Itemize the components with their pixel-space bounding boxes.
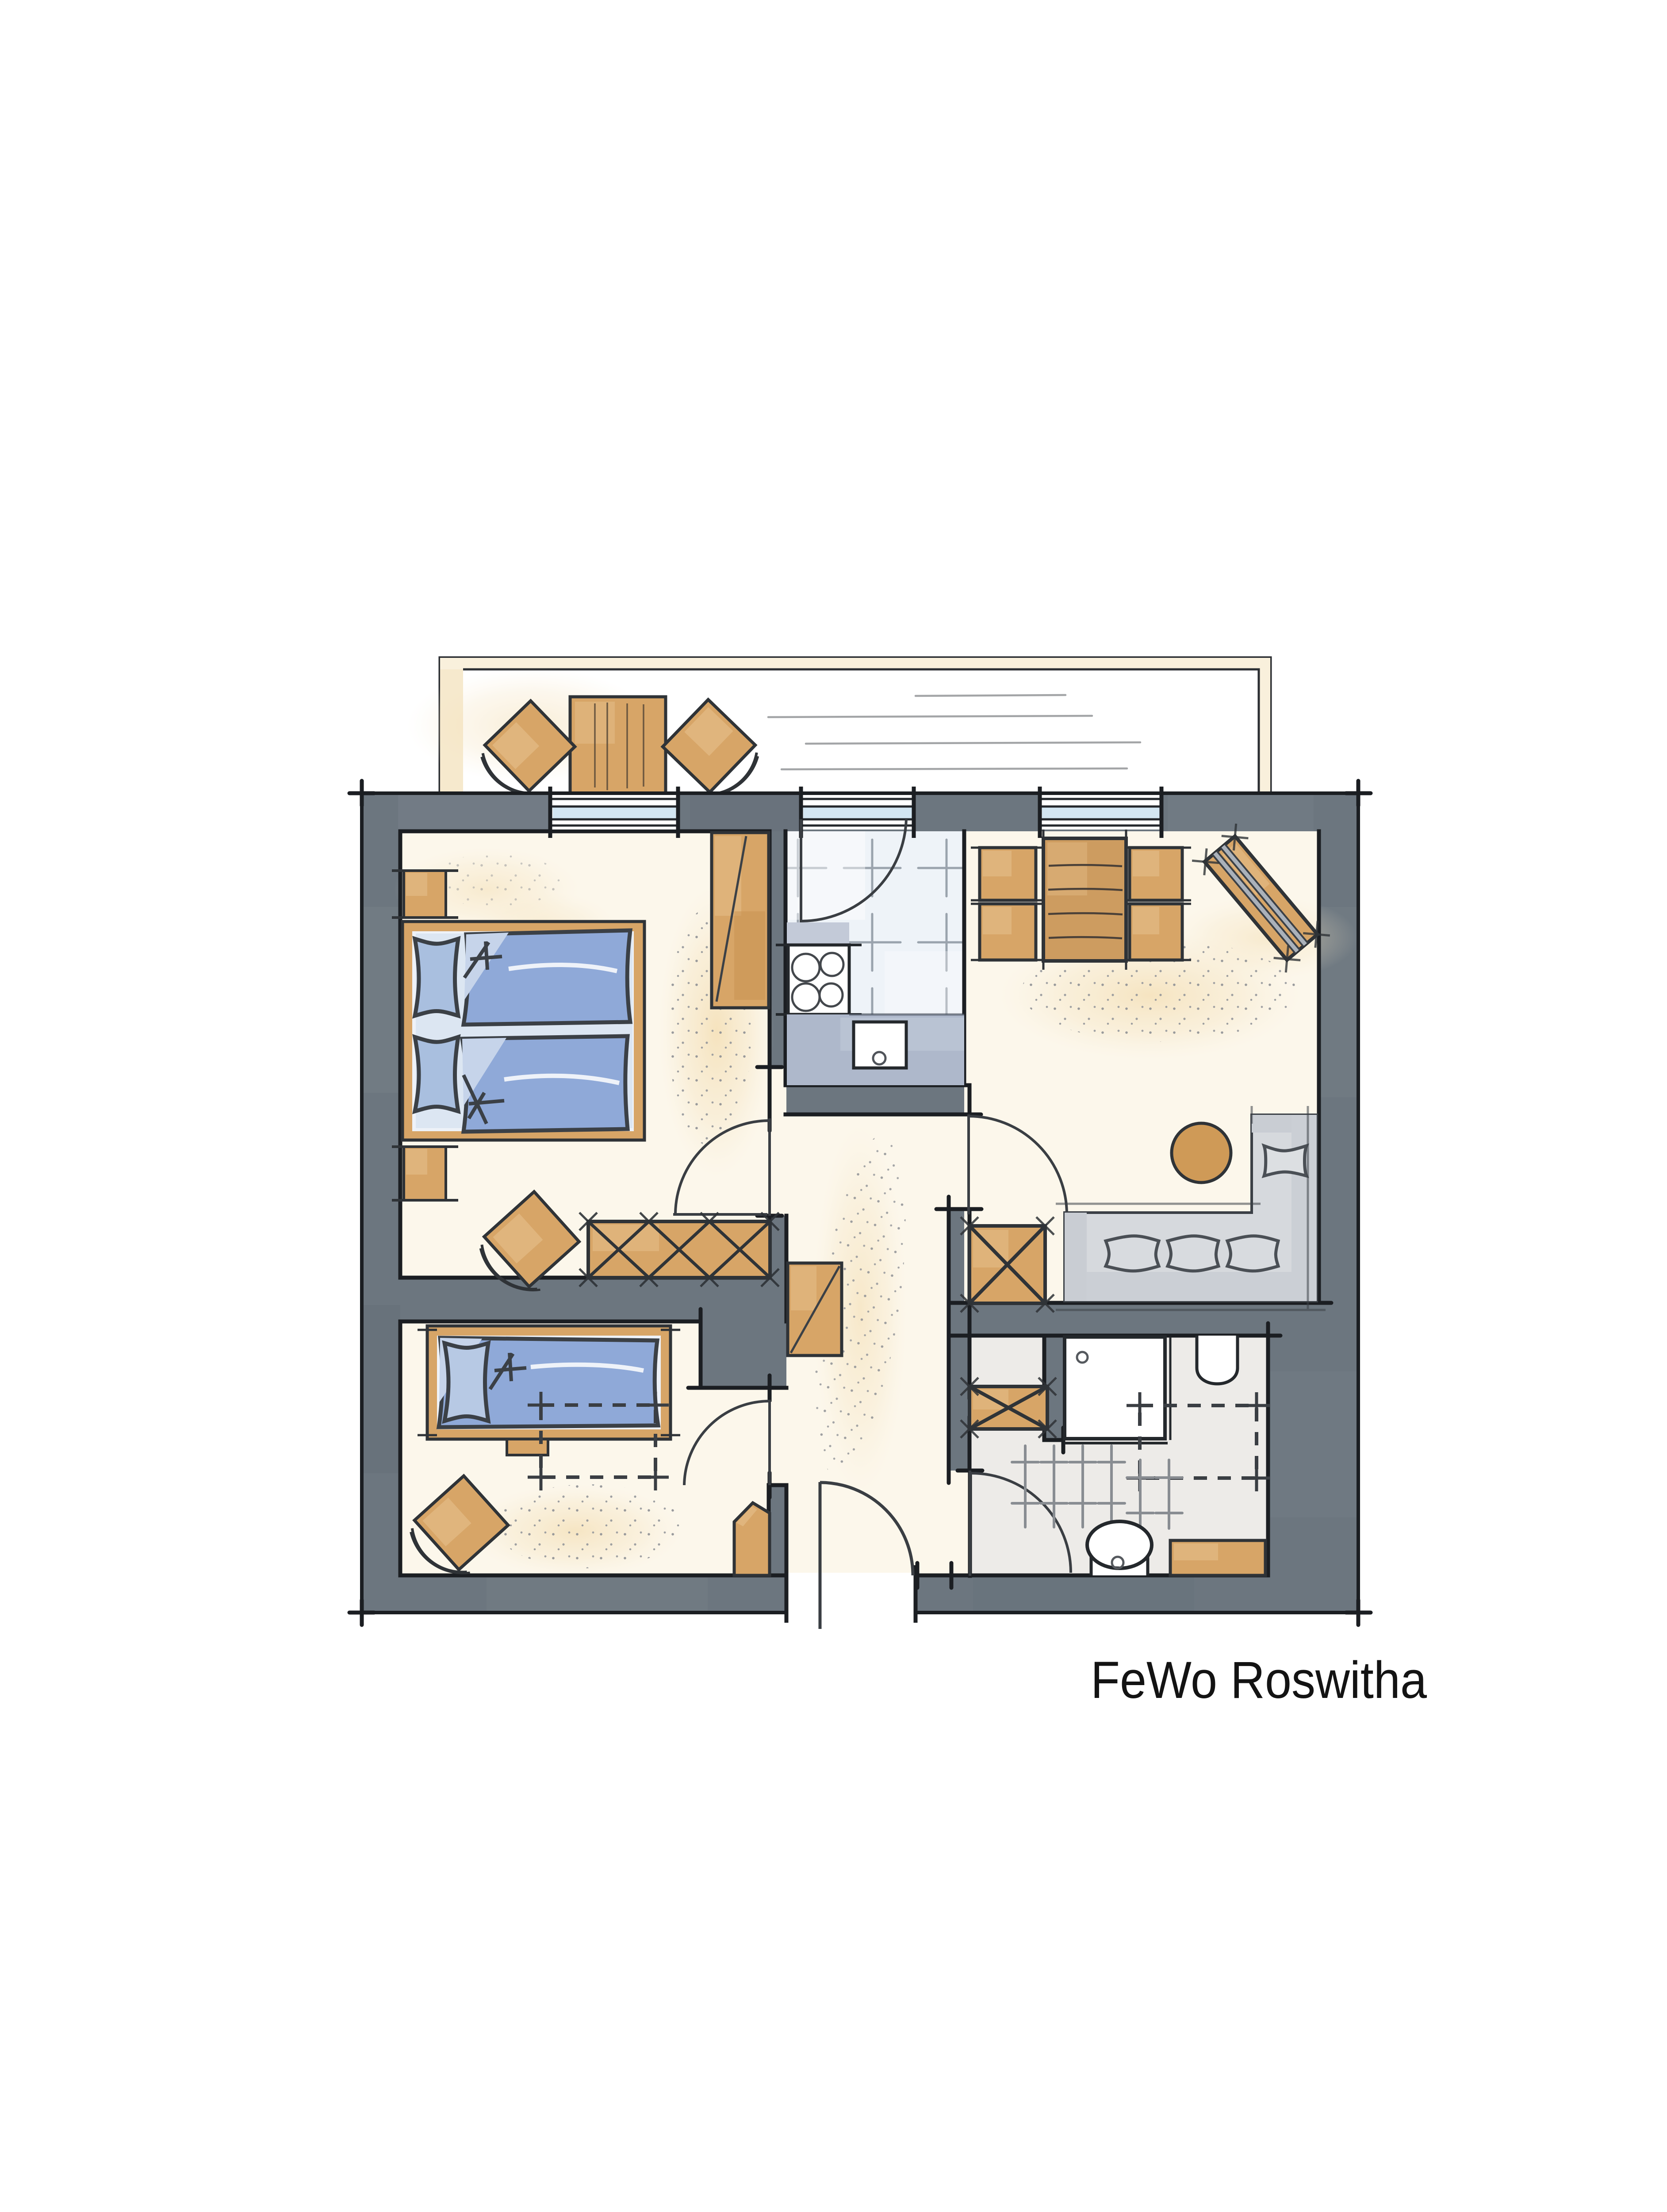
svg-text:FeWo Roswitha: FeWo Roswitha <box>1091 1651 1427 1709</box>
